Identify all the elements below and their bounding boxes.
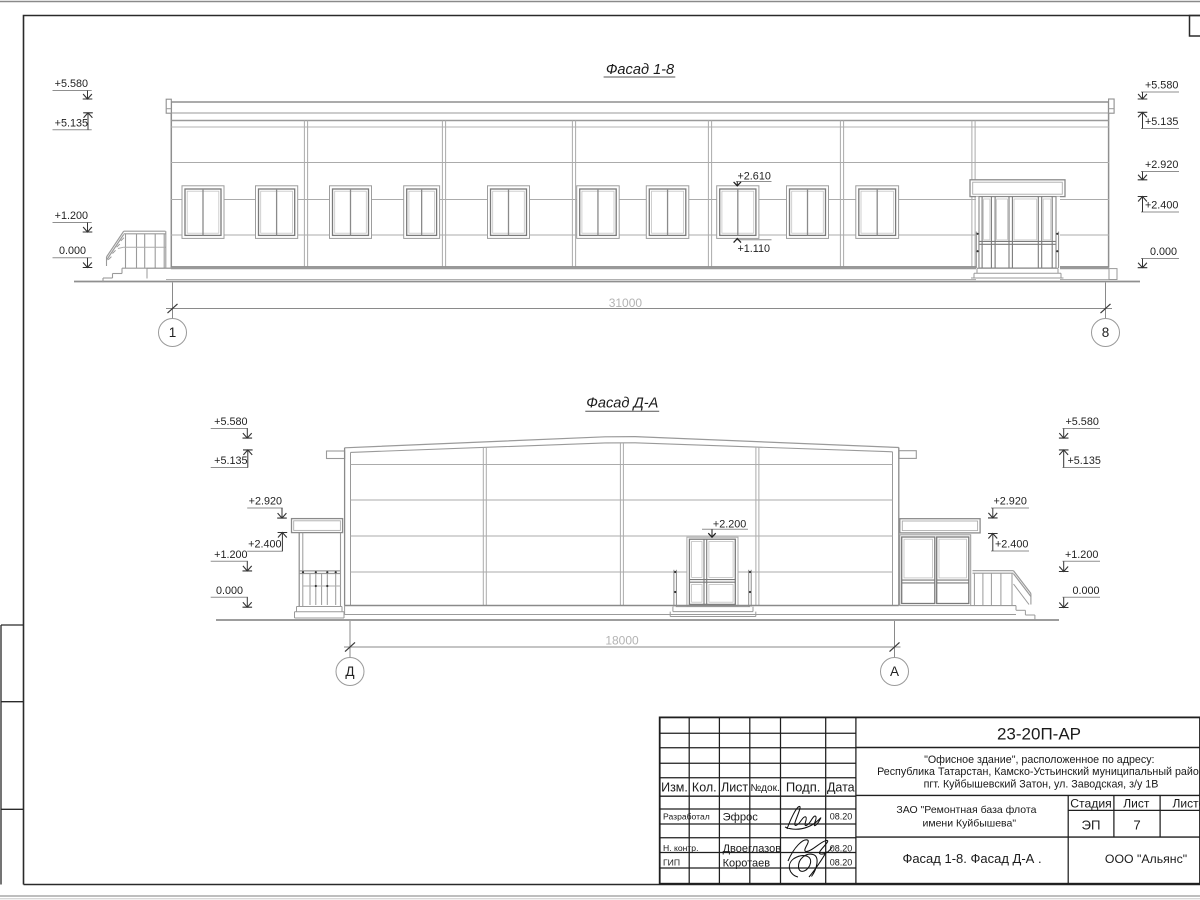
svg-text:ГИП: ГИП <box>663 858 680 868</box>
svg-text:Д: Д <box>345 664 354 679</box>
svg-text:+2.610: +2.610 <box>738 171 771 183</box>
svg-text:7: 7 <box>1133 818 1140 833</box>
svg-text:Разработал: Разработал <box>663 811 710 821</box>
svg-text:+5.580: +5.580 <box>55 78 88 90</box>
svg-text:+2.200: +2.200 <box>713 518 746 530</box>
svg-text:Листов: Листов <box>1173 797 1200 811</box>
svg-text:18000: 18000 <box>605 633 639 647</box>
svg-text:+1.110: +1.110 <box>738 243 771 255</box>
svg-text:08.20: 08.20 <box>830 812 853 822</box>
svg-text:+5.135: +5.135 <box>55 117 88 129</box>
svg-text:08.20: 08.20 <box>830 858 853 868</box>
svg-text:Лист: Лист <box>1123 797 1150 811</box>
svg-text:ООО "Альянс": ООО "Альянс" <box>1105 852 1187 866</box>
svg-text:0.000: 0.000 <box>1073 585 1100 597</box>
svg-text:Лист: Лист <box>721 781 748 795</box>
svg-text:+1.200: +1.200 <box>214 549 247 561</box>
svg-text:имени Куйбышева": имени Куйбышева" <box>923 817 1017 829</box>
svg-text:+5.135: +5.135 <box>1068 455 1101 467</box>
svg-text:+2.920: +2.920 <box>1145 159 1178 171</box>
svg-text:Двоеглазов: Двоеглазов <box>723 843 782 855</box>
svg-text:№док.: №док. <box>750 783 779 794</box>
svg-text:ЗАО "Ремонтная база флота: ЗАО "Ремонтная база флота <box>896 804 1036 816</box>
svg-text:1: 1 <box>169 325 177 340</box>
svg-text:+1.200: +1.200 <box>55 210 88 222</box>
svg-text:23-20П-АР: 23-20П-АР <box>997 724 1081 743</box>
svg-text:пгт. Куйбышевский Затон, ул. З: пгт. Куйбышевский Затон, ул. Заводская, … <box>924 779 1159 791</box>
svg-text:+5.135: +5.135 <box>1145 116 1178 128</box>
svg-text:Эфрос: Эфрос <box>723 811 759 823</box>
svg-text:Стадия: Стадия <box>1070 797 1112 811</box>
svg-text:Кол.: Кол. <box>692 781 717 795</box>
svg-text:Республика Татарстан, Камско-У: Республика Татарстан, Камско-Устьинский … <box>877 766 1200 778</box>
svg-text:0.000: 0.000 <box>216 585 243 597</box>
svg-text:Изм.: Изм. <box>661 781 688 795</box>
svg-text:Фасад Д-А: Фасад Д-А <box>586 396 658 412</box>
svg-text:+2.400: +2.400 <box>1145 200 1178 212</box>
svg-text:А: А <box>890 664 899 679</box>
svg-text:0.000: 0.000 <box>59 245 86 257</box>
svg-text:ЭП: ЭП <box>1082 818 1101 833</box>
svg-text:Дата: Дата <box>827 781 855 795</box>
svg-text:"Офисное здание", расположенно: "Офисное здание", расположенное по адрес… <box>924 754 1154 766</box>
svg-text:31000: 31000 <box>609 296 643 310</box>
svg-text:Фасад 1-8. Фасад Д-А .: Фасад 1-8. Фасад Д-А . <box>902 851 1041 866</box>
svg-text:08.20: 08.20 <box>830 843 853 853</box>
svg-text:Подп.: Подп. <box>786 780 821 795</box>
svg-text:8: 8 <box>1102 325 1110 340</box>
svg-text:+5.580: +5.580 <box>214 416 247 428</box>
svg-text:Фасад 1-8: Фасад 1-8 <box>606 62 675 78</box>
svg-text:+2.400: +2.400 <box>248 539 281 551</box>
svg-text:+2.920: +2.920 <box>249 496 282 508</box>
svg-text:Н. контр.: Н. контр. <box>663 843 698 853</box>
svg-text:+2.400: +2.400 <box>995 539 1028 551</box>
svg-text:+5.135: +5.135 <box>214 455 247 467</box>
svg-text:+2.920: +2.920 <box>994 496 1027 508</box>
svg-text:+1.200: +1.200 <box>1065 549 1098 561</box>
svg-text:+5.580: +5.580 <box>1145 80 1178 92</box>
svg-text:0.000: 0.000 <box>1150 246 1177 258</box>
svg-text:+5.580: +5.580 <box>1066 416 1099 428</box>
svg-text:Коротаев: Коротаев <box>723 857 771 869</box>
